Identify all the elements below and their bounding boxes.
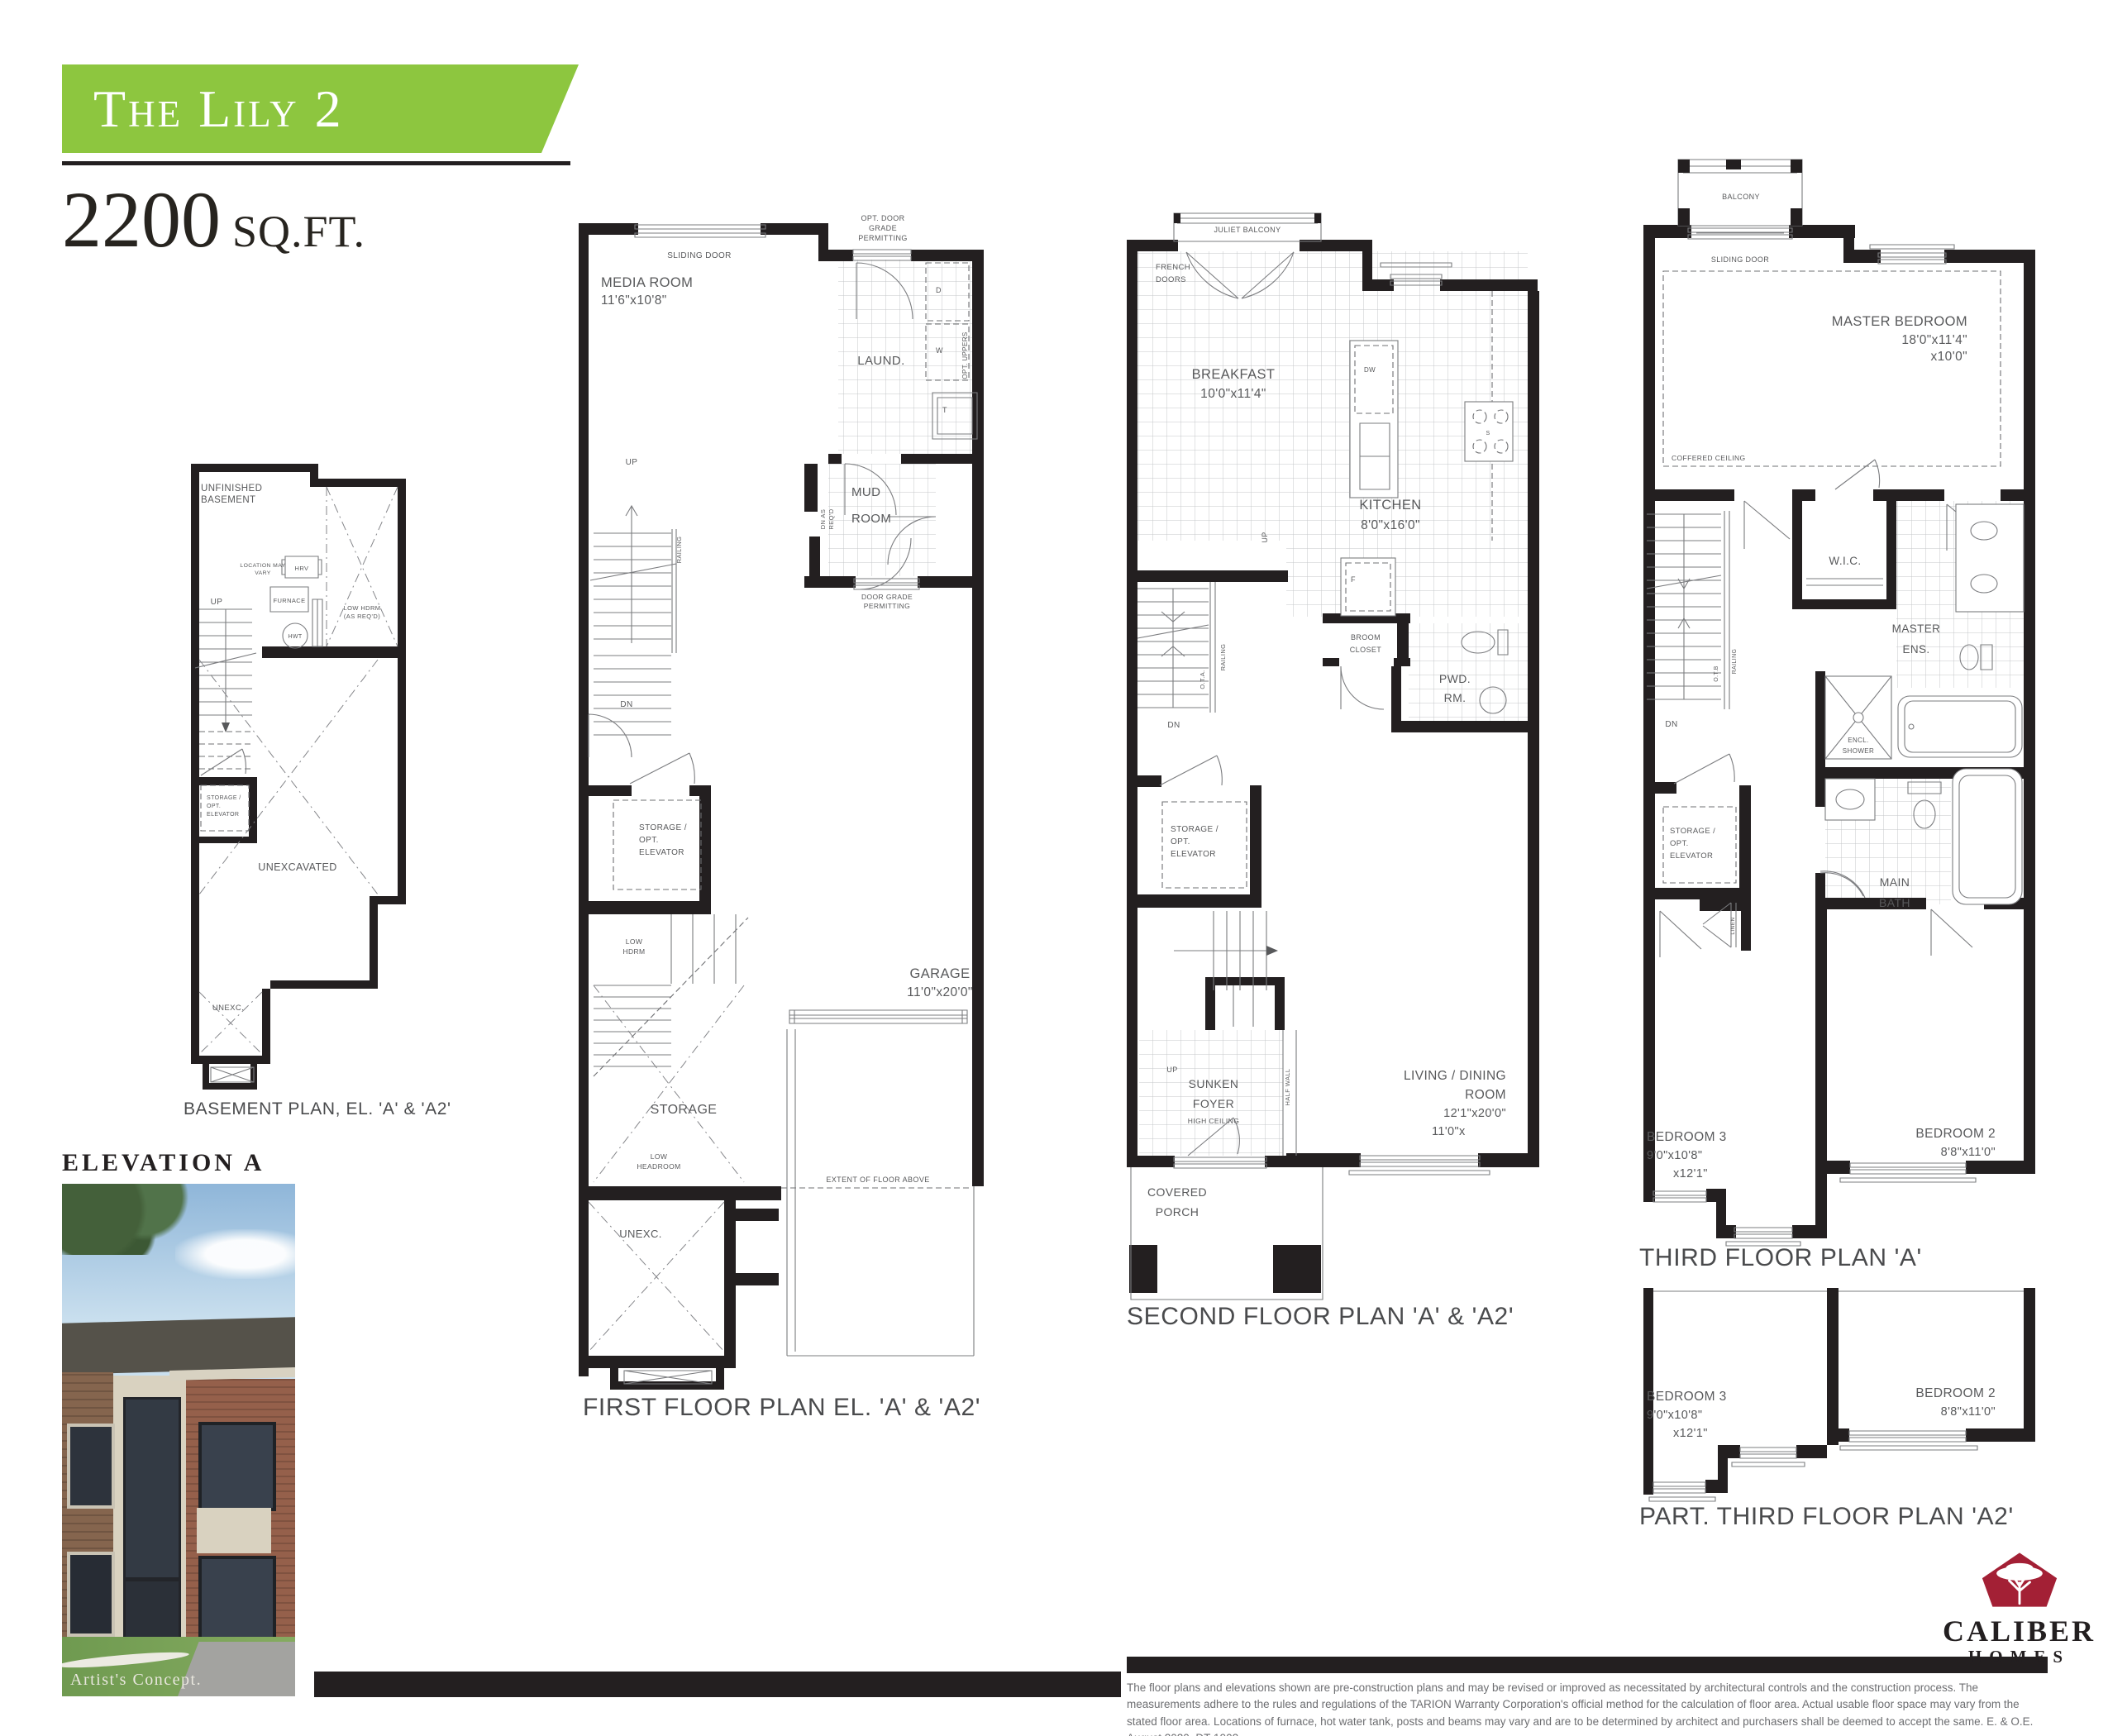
room-dims: 18'0"x11'4" <box>1901 333 1967 347</box>
room-label: MASTER <box>1892 622 1941 635</box>
sqft-unit: SQ.FT. <box>232 206 365 257</box>
stair-label: RAILING <box>1732 649 1738 675</box>
hwt-label: HWT <box>288 634 302 640</box>
appliance-label: D <box>936 286 942 294</box>
note-label: EXTENT OF FLOOR ABOVE <box>826 1176 929 1184</box>
brand-subname: HOMES <box>1939 1648 2100 1666</box>
stair-label: UP <box>211 598 223 607</box>
door-label: DOORS <box>1156 275 1186 284</box>
disclaimer-text: The floor plans and elevations shown are… <box>1127 1680 2050 1736</box>
room-label: BASEMENT <box>201 495 255 505</box>
basement-floorplan: UNFINISHED BASEMENT UP LOCATION MAY VARY… <box>178 455 426 1116</box>
note-label: HIGH CEILING <box>1188 1117 1239 1125</box>
floorplan-sheet: The Lily 2 2200 SQ.FT. UNFINISHED BASEME… <box>0 0 2108 1736</box>
area-label: STORAGE <box>651 1103 718 1117</box>
window-right-upper <box>198 1422 276 1511</box>
room-label: FOYER <box>1193 1097 1234 1110</box>
area-label: UNEXCAVATED <box>258 861 336 873</box>
footer-bar-right <box>1127 1657 2048 1673</box>
room-dims: 9'0"x10'8" <box>1647 1149 1702 1162</box>
room-label: LAUND. <box>857 354 904 368</box>
stair-label: DN <box>620 700 632 709</box>
storage-label: STORAGE / <box>1171 825 1219 834</box>
note-label: LOW <box>651 1152 668 1161</box>
room-label: ENS. <box>1902 643 1929 656</box>
closet-label: CLOSET <box>1350 646 1382 654</box>
porch-label: PORCH <box>1156 1205 1199 1219</box>
storage-label: ELEVATOR <box>1171 850 1216 859</box>
room-label: BEDROOM 2 <box>1915 1386 1996 1400</box>
note-label: HEADROOM <box>637 1162 680 1171</box>
room-label: KITCHEN <box>1359 498 1421 513</box>
stair-label: UP <box>1261 532 1269 542</box>
room-label: SUNKEN <box>1189 1077 1239 1090</box>
storage-label: OPT. <box>1670 839 1689 848</box>
stair-label: RAILING <box>675 537 683 564</box>
note-label: LOCATION MAY <box>240 563 285 569</box>
window-right-lower <box>198 1556 276 1643</box>
sqft-value: 2200 <box>62 180 221 260</box>
model-name-banner: The Lily 2 <box>62 64 579 153</box>
room-label: MUD <box>851 485 880 499</box>
roof <box>62 1317 295 1374</box>
room-dims: 8'8"x11'0" <box>1941 1405 1996 1419</box>
balcony-label: JULIET BALCONY <box>1214 226 1281 234</box>
storage-label: ELEVATOR <box>1670 851 1713 861</box>
room-dims: 10'0"x11'4" <box>1200 387 1266 401</box>
note-label: LOW <box>626 937 643 946</box>
room-label: MAIN <box>1880 875 1910 889</box>
hrv-label: HRV <box>295 565 309 572</box>
footer-bar-left <box>314 1672 1121 1697</box>
room-dims: 8'0"x16'0" <box>1361 518 1420 532</box>
appliance-label: F <box>1351 575 1356 584</box>
room-label: PWD. <box>1439 672 1471 685</box>
spandrel <box>197 1508 271 1553</box>
note-label: COFFERED CEILING <box>1672 454 1746 462</box>
square-footage: 2200 SQ.FT. <box>62 180 365 260</box>
door-label: SLIDING DOOR <box>1711 255 1769 264</box>
foliage <box>62 1184 193 1255</box>
note-label: VARY <box>255 570 271 576</box>
room-dims: x10'0" <box>1931 350 1967 364</box>
caliber-homes-logo: CALIBER HOMES <box>1939 1551 2100 1666</box>
room-label: W.I.C. <box>1829 555 1861 567</box>
room-label: RM. <box>1444 691 1467 704</box>
note-label: PERMITTING <box>864 602 910 610</box>
cloud <box>175 1229 295 1279</box>
room-dims: 11'6"x10'8" <box>601 293 667 308</box>
room-label: UNFINISHED <box>201 484 262 494</box>
kitchen-tile <box>1286 541 1528 617</box>
note-label: HDRM <box>622 947 645 956</box>
note-label: OPT. DOOR <box>861 214 904 222</box>
room-dims: 11'0"x <box>1432 1125 1466 1138</box>
stair-label: UP <box>626 458 638 467</box>
logo-house-icon <box>1980 1551 2059 1609</box>
area-label: UNEXC. <box>619 1228 662 1240</box>
shower-label: SHOWER <box>1843 747 1874 755</box>
first-floorplan: SLIDING DOOR OPT. DOOR GRADE PERMITTING … <box>575 211 1000 1430</box>
basement-caption: BASEMENT PLAN, EL. 'A' & 'A2' <box>184 1099 451 1119</box>
closet-label: BROOM <box>1351 633 1381 641</box>
room-label: BEDROOM 3 <box>1647 1390 1727 1404</box>
room-label: BATH <box>1879 896 1910 909</box>
basement-labels: UNFINISHED BASEMENT UP LOCATION MAY VARY… <box>201 484 380 1013</box>
appliance-label: S <box>1486 431 1490 436</box>
storage-label: OPT. <box>207 804 221 809</box>
second-caption: SECOND FLOOR PLAN 'A' & 'A2' <box>1127 1303 1514 1331</box>
room-dims: x12'1" <box>1673 1427 1708 1440</box>
note-label: (AS REQ'D) <box>344 613 380 620</box>
window-left-upper <box>67 1424 115 1509</box>
part-third-caption: PART. THIRD FLOOR PLAN 'A2' <box>1639 1503 2014 1531</box>
storage-label: ELEVATOR <box>639 848 684 857</box>
basement-walls <box>191 464 406 1090</box>
door-label: FRENCH <box>1156 263 1190 272</box>
stair-label: RAILING <box>1219 644 1227 671</box>
note-label: DOOR GRADE <box>861 593 913 601</box>
stair-label: DN <box>1665 720 1677 729</box>
window-center-mid <box>123 1579 181 1640</box>
room-label: BEDROOM 2 <box>1915 1127 1996 1141</box>
stair-label: UP <box>1166 1066 1177 1074</box>
room-label: MEDIA ROOM <box>601 275 693 290</box>
room-label: ROOM <box>1465 1088 1506 1102</box>
furnace-label: FURNACE <box>273 597 305 604</box>
note-label: PERMITTING <box>858 234 908 242</box>
second-floorplan: JULIET BALCONY FRENCH DOORS BREAKFAST 10… <box>1124 207 1571 1314</box>
closet-label: LINEN <box>1730 917 1736 934</box>
room-dims: 8'8"x11'0" <box>1941 1146 1996 1159</box>
balcony-label: BALCONY <box>1722 193 1760 201</box>
stair-label: DN <box>1167 721 1180 730</box>
note-label: GRADE <box>869 224 897 232</box>
note-label: REQ'D <box>827 508 835 529</box>
storage-label: ELEVATOR <box>207 812 239 818</box>
stair-label: O.T.A. <box>1199 670 1206 689</box>
area-label: UNEXC. <box>212 1004 244 1013</box>
storage-label: STORAGE / <box>207 795 241 801</box>
room-label: LIVING / DINING <box>1404 1069 1506 1083</box>
note-label: OPT. UPPERS <box>961 331 969 379</box>
part-labels: BEDROOM 3 9'0"x10'8" x12'1" BEDROOM 2 8'… <box>1647 1386 1996 1440</box>
stair-label: O.T.B <box>1714 665 1719 682</box>
elevation-heading: ELEVATION A <box>62 1149 265 1177</box>
appliance-label: W <box>936 346 943 355</box>
shower-label: ENCL. <box>1848 737 1869 744</box>
window-left-lower <box>67 1552 115 1637</box>
room-label: MASTER BEDROOM <box>1832 314 1967 329</box>
banner-underline <box>62 161 570 165</box>
elevation-rendering: Artist's Concept. <box>62 1184 295 1696</box>
third-caption: THIRD FLOOR PLAN 'A' <box>1639 1244 1922 1272</box>
storage-label: STORAGE / <box>639 823 687 832</box>
room-dims: 12'1"x20'0" <box>1443 1107 1506 1120</box>
storage-label: STORAGE / <box>1670 827 1715 836</box>
third-floorplan: BALCONY SLIDING DOOR MASTER BEDROOM 18'0… <box>1637 153 2079 1273</box>
room-dims: 9'0"x10'8" <box>1647 1409 1702 1422</box>
model-name: The Lily 2 <box>62 83 344 136</box>
storage-label: OPT. <box>1171 837 1190 847</box>
door-label: SLIDING DOOR <box>667 251 732 260</box>
basement-stairs <box>195 609 256 769</box>
note-label: HALF WALL <box>1284 1068 1291 1105</box>
room-label: ROOM <box>851 512 891 526</box>
window-center-tall <box>123 1397 181 1580</box>
room-dims: x12'1" <box>1673 1167 1708 1180</box>
room-dims: 11'0"x20'0" <box>907 985 973 999</box>
artist-concept-caption: Artist's Concept. <box>70 1671 202 1690</box>
room-label: BEDROOM 3 <box>1647 1130 1727 1144</box>
storage-label: OPT. <box>639 836 659 845</box>
note-label: DN AS <box>819 509 827 530</box>
room-label: BREAKFAST <box>1192 367 1276 382</box>
room-label: GARAGE <box>909 966 970 981</box>
note-label: LOW HDRM <box>344 604 381 612</box>
appliance-label: T <box>942 406 947 414</box>
breakfast-tile <box>1137 251 1528 541</box>
appliance-label: DW <box>1364 366 1376 374</box>
brand-name: CALIBER <box>1939 1616 2100 1646</box>
porch-label: COVERED <box>1147 1185 1207 1199</box>
first-caption: FIRST FLOOR PLAN EL. 'A' & 'A2' <box>583 1394 980 1422</box>
